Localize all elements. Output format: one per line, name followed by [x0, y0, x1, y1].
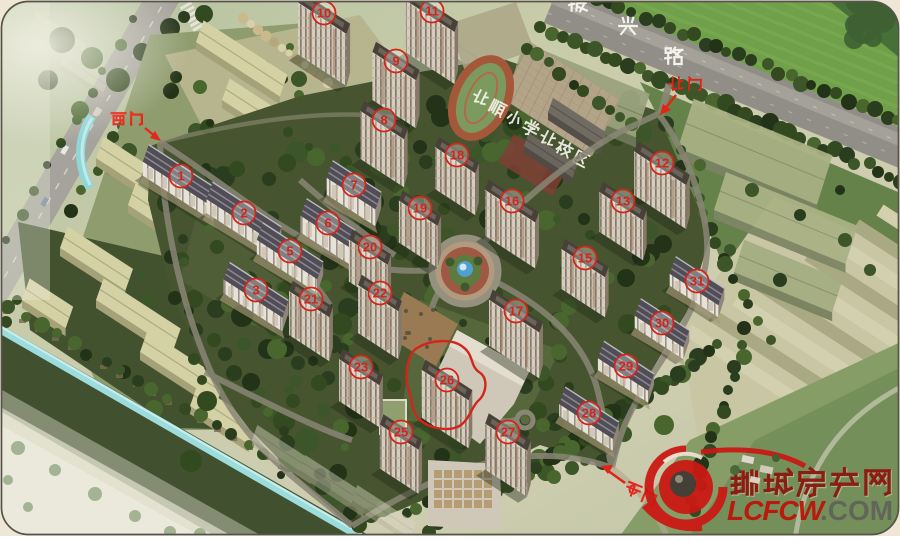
svg-text:30: 30 [655, 316, 669, 331]
svg-text:LCFCW: LCFCW [727, 495, 827, 526]
svg-text:8: 8 [380, 113, 387, 128]
svg-text:15: 15 [578, 251, 592, 266]
svg-text:27: 27 [501, 425, 515, 440]
svg-text:18: 18 [450, 148, 464, 163]
svg-text:29: 29 [619, 359, 633, 374]
svg-text:9: 9 [392, 54, 399, 69]
svg-text:19: 19 [413, 201, 427, 216]
svg-text:.COM: .COM [820, 495, 893, 526]
svg-text:17: 17 [509, 304, 523, 319]
svg-text:7: 7 [350, 178, 357, 193]
svg-text:11: 11 [425, 4, 439, 19]
svg-text:16: 16 [505, 194, 519, 209]
svg-text:13: 13 [616, 194, 630, 209]
svg-text:28: 28 [582, 406, 596, 421]
svg-text:5: 5 [286, 244, 293, 259]
svg-text:26: 26 [440, 373, 454, 388]
svg-text:25: 25 [394, 425, 408, 440]
svg-text:1: 1 [177, 169, 184, 184]
svg-text:31: 31 [690, 274, 704, 289]
svg-text:2: 2 [240, 206, 247, 221]
svg-text:23: 23 [354, 360, 368, 375]
svg-text:20: 20 [363, 240, 377, 255]
svg-text:10: 10 [317, 6, 331, 21]
svg-text:12: 12 [655, 156, 669, 171]
svg-text:22: 22 [373, 286, 387, 301]
svg-text:21: 21 [304, 292, 318, 307]
svg-text:6: 6 [324, 216, 331, 231]
svg-text:3: 3 [252, 283, 259, 298]
